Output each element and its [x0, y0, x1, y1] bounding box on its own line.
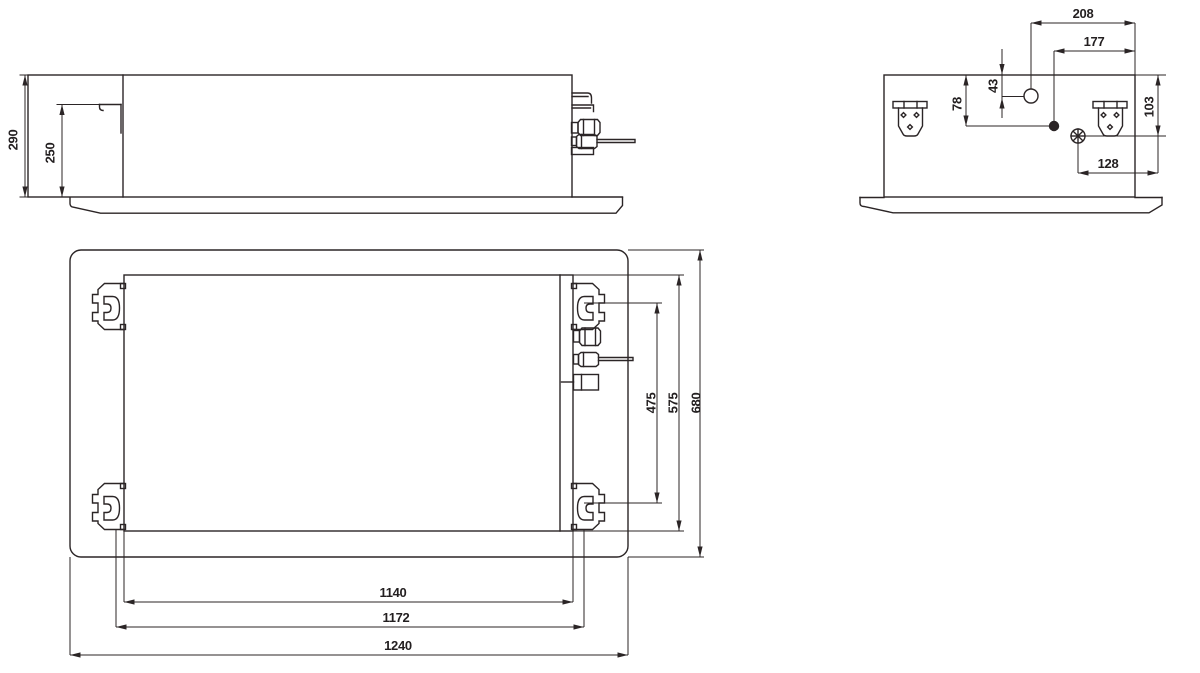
- plan-panel-outline: [70, 250, 628, 557]
- plan-hanger-bracket-top-left: [93, 284, 126, 330]
- drain-connection: [574, 375, 599, 391]
- dimension-lines: [20, 23, 1167, 655]
- plan-pipe-connections: [562, 328, 634, 390]
- front-hanger-bracket: [100, 105, 122, 134]
- bolt-point: [1050, 122, 1059, 131]
- liquid-pipe-flare-nut: [577, 135, 598, 149]
- dim-label-128: 128: [1098, 156, 1119, 171]
- dim-label-103: 103: [1142, 97, 1157, 118]
- plan-hanger-bracket-bottom-left: [93, 484, 126, 530]
- dim-label-43: 43: [986, 79, 1001, 93]
- side-hanger-bracket-left: [893, 102, 927, 137]
- dim-label-575: 575: [666, 393, 681, 414]
- dim-label-78: 78: [950, 97, 965, 111]
- dim-label-680: 680: [689, 393, 704, 414]
- drain-hole-hatched: [1071, 129, 1085, 143]
- front-pipe-connections: [572, 120, 636, 155]
- front-panel-flange: [70, 197, 623, 213]
- dim-label-208: 208: [1073, 6, 1094, 21]
- front-body-outline: [28, 75, 572, 197]
- plan-hanger-bracket-top-right: [572, 284, 605, 330]
- gas-pipe-collar: [574, 331, 580, 343]
- liquid-pipe-collar: [574, 355, 579, 365]
- side-view: [860, 75, 1162, 213]
- drawing-canvas: 290 250 208 177 43 78 103 128 475 575 68…: [0, 0, 1200, 673]
- dim-label-1140: 1140: [379, 585, 406, 600]
- plan-hanger-bracket-bottom-right: [572, 484, 605, 530]
- front-view: [28, 75, 635, 213]
- dim-label-475: 475: [644, 393, 659, 414]
- dim-label-177: 177: [1084, 34, 1105, 49]
- knockout-hole: [1024, 89, 1038, 103]
- dim-label-1240: 1240: [384, 638, 412, 653]
- side-hanger-bracket-right: [1093, 102, 1127, 137]
- plan-body-outline: [124, 275, 573, 531]
- front-hanger-plate: [572, 93, 594, 112]
- plan-view: [70, 250, 633, 557]
- dim-label-1172: 1172: [382, 610, 409, 625]
- technical-dimension-drawing: 290 250 208 177 43 78 103 128 475 575 68…: [0, 0, 1200, 673]
- gas-pipe-flare-nut: [580, 328, 601, 346]
- liquid-pipe-flare-nut: [579, 353, 599, 367]
- gas-pipe-flare-nut: [578, 120, 600, 136]
- liquid-pipe-tube: [597, 140, 635, 143]
- dim-label-250: 250: [43, 143, 58, 164]
- dim-label-290: 290: [6, 130, 21, 151]
- side-panel-flange: [860, 198, 1162, 213]
